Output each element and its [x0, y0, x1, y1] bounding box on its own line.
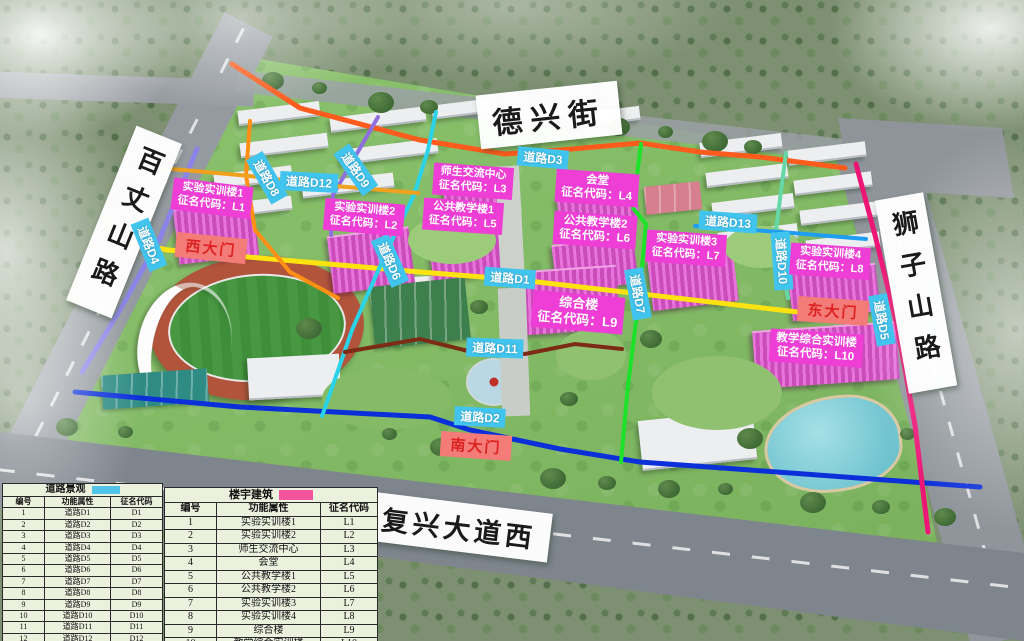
legend-table-buildings: 楼宇建筑编号功能属性征名代码1实验实训楼1L12实验实训楼2L23师生交流中心L…	[164, 487, 378, 641]
legend-cell: L5	[321, 570, 378, 584]
legend-cell: 6	[165, 584, 217, 598]
legend-row: 5公共教学楼1L5	[165, 570, 378, 584]
legend-row: 7道路D7D7	[3, 576, 163, 587]
legend-row: 7实验实训楼3L7	[165, 597, 378, 611]
legend-cell: 公共教学楼1	[217, 570, 321, 584]
legend-cell: D2	[111, 519, 163, 530]
legend-row: 10道路D10D10	[3, 611, 163, 622]
legend-cell: 4	[3, 542, 45, 553]
legend-row: 10教学综合实训楼L10	[165, 638, 378, 641]
legend-cell: D12	[111, 633, 163, 641]
legend-row: 1道路D1D1	[3, 508, 163, 519]
legend-cell: 11	[3, 622, 45, 633]
legend-cell: 9	[165, 624, 217, 638]
legend-col-header: 编号	[165, 503, 217, 517]
legend-row: 8实验实训楼4L8	[165, 611, 378, 625]
legend-color-swatch	[279, 490, 313, 500]
legend-cell: 2	[3, 519, 45, 530]
legend-cell: 实验实训楼1	[217, 516, 321, 530]
legend-cell: L3	[321, 543, 378, 557]
legend-cell: L6	[321, 584, 378, 598]
legend-cell: 道路D3	[45, 531, 111, 542]
legend-cell: D10	[111, 611, 163, 622]
legend-cell: 会堂	[217, 557, 321, 571]
legend-cell: 5	[165, 570, 217, 584]
legend-cell: 5	[3, 554, 45, 565]
legend-cell: 道路D11	[45, 622, 111, 633]
legend-cell: 3	[165, 543, 217, 557]
legend-row: 2道路D2D2	[3, 519, 163, 530]
legend-col-header: 功能属性	[217, 503, 321, 517]
legend-col-header: 征名代码	[111, 497, 163, 508]
legend-title: 道路景观	[46, 484, 86, 495]
legend-cell: 1	[165, 516, 217, 530]
legend-title: 楼宇建筑	[229, 489, 273, 501]
legend-row: 2实验实训楼2L2	[165, 530, 378, 544]
legend-cell: 8	[3, 588, 45, 599]
legend-row: 1实验实训楼1L1	[165, 516, 378, 530]
legend-col-header: 功能属性	[45, 497, 111, 508]
legend-cell: L9	[321, 624, 378, 638]
legend-cell: 8	[165, 611, 217, 625]
legend-cell: D8	[111, 588, 163, 599]
legend-cell: 10	[165, 638, 217, 641]
legend-row: 4道路D4D4	[3, 542, 163, 553]
legend-row: 8道路D8D8	[3, 588, 163, 599]
legend-table-roads: 道路景观编号功能属性征名代码1道路D1D12道路D2D23道路D3D34道路D4…	[2, 483, 163, 641]
legend-cell: 道路D4	[45, 542, 111, 553]
legend-cell: 道路D8	[45, 588, 111, 599]
legend-cell: 6	[3, 565, 45, 576]
legend-cell: D11	[111, 622, 163, 633]
legend-cell: D9	[111, 599, 163, 610]
legend-cell: L2	[321, 530, 378, 544]
legend-cell: L1	[321, 516, 378, 530]
legend-cell: 9	[3, 599, 45, 610]
legend-cell: 7	[165, 597, 217, 611]
legend-cell: D7	[111, 576, 163, 587]
legend-row: 9综合楼L9	[165, 624, 378, 638]
legend-cell: D5	[111, 554, 163, 565]
legend-col-header: 编号	[3, 497, 45, 508]
legend-cell: 道路D9	[45, 599, 111, 610]
legend-cell: 综合楼	[217, 624, 321, 638]
legend-area: 道路景观编号功能属性征名代码1道路D1D12道路D2D23道路D3D34道路D4…	[0, 0, 1024, 641]
legend-cell: L10	[321, 638, 378, 641]
legend-row: 3师生交流中心L3	[165, 543, 378, 557]
legend-cell: 1	[3, 508, 45, 519]
legend-row: 3道路D3D3	[3, 531, 163, 542]
legend-cell: 道路D5	[45, 554, 111, 565]
legend-cell: 4	[165, 557, 217, 571]
legend-cell: 道路D1	[45, 508, 111, 519]
legend-row: 5道路D5D5	[3, 554, 163, 565]
legend-cell: 教学综合实训楼	[217, 638, 321, 641]
legend-cell: 公共教学楼2	[217, 584, 321, 598]
legend-cell: L8	[321, 611, 378, 625]
legend-cell: D1	[111, 508, 163, 519]
legend-col-header: 征名代码	[321, 503, 378, 517]
legend-cell: 7	[3, 576, 45, 587]
legend-row: 11道路D11D11	[3, 622, 163, 633]
legend-cell: 实验实训楼4	[217, 611, 321, 625]
legend-cell: 道路D12	[45, 633, 111, 641]
legend-cell: 师生交流中心	[217, 543, 321, 557]
legend-cell: L4	[321, 557, 378, 571]
legend-row: 4会堂L4	[165, 557, 378, 571]
legend-cell: 道路D6	[45, 565, 111, 576]
legend-cell: 10	[3, 611, 45, 622]
legend-cell: 3	[3, 531, 45, 542]
legend-cell: D6	[111, 565, 163, 576]
legend-row: 6道路D6D6	[3, 565, 163, 576]
legend-cell: L7	[321, 597, 378, 611]
legend-cell: 实验实训楼2	[217, 530, 321, 544]
legend-cell: 实验实训楼3	[217, 597, 321, 611]
legend-title-row: 楼宇建筑	[165, 488, 378, 503]
legend-cell: 道路D2	[45, 519, 111, 530]
legend-cell: D3	[111, 531, 163, 542]
legend-row: 9道路D9D9	[3, 599, 163, 610]
legend-row: 12道路D12D12	[3, 633, 163, 641]
legend-row: 6公共教学楼2L6	[165, 584, 378, 598]
legend-cell: 道路D10	[45, 611, 111, 622]
legend-cell: 12	[3, 633, 45, 641]
legend-cell: D4	[111, 542, 163, 553]
legend-color-swatch	[92, 486, 120, 494]
legend-cell: 道路D7	[45, 576, 111, 587]
legend-title-row: 道路景观	[3, 484, 163, 497]
campus-plan-map: 德兴街 百丈山路 狮子山路 复兴大道西 道路D1道路D2道路D3道路D4道路D5…	[0, 0, 1024, 641]
legend-cell: 2	[165, 530, 217, 544]
